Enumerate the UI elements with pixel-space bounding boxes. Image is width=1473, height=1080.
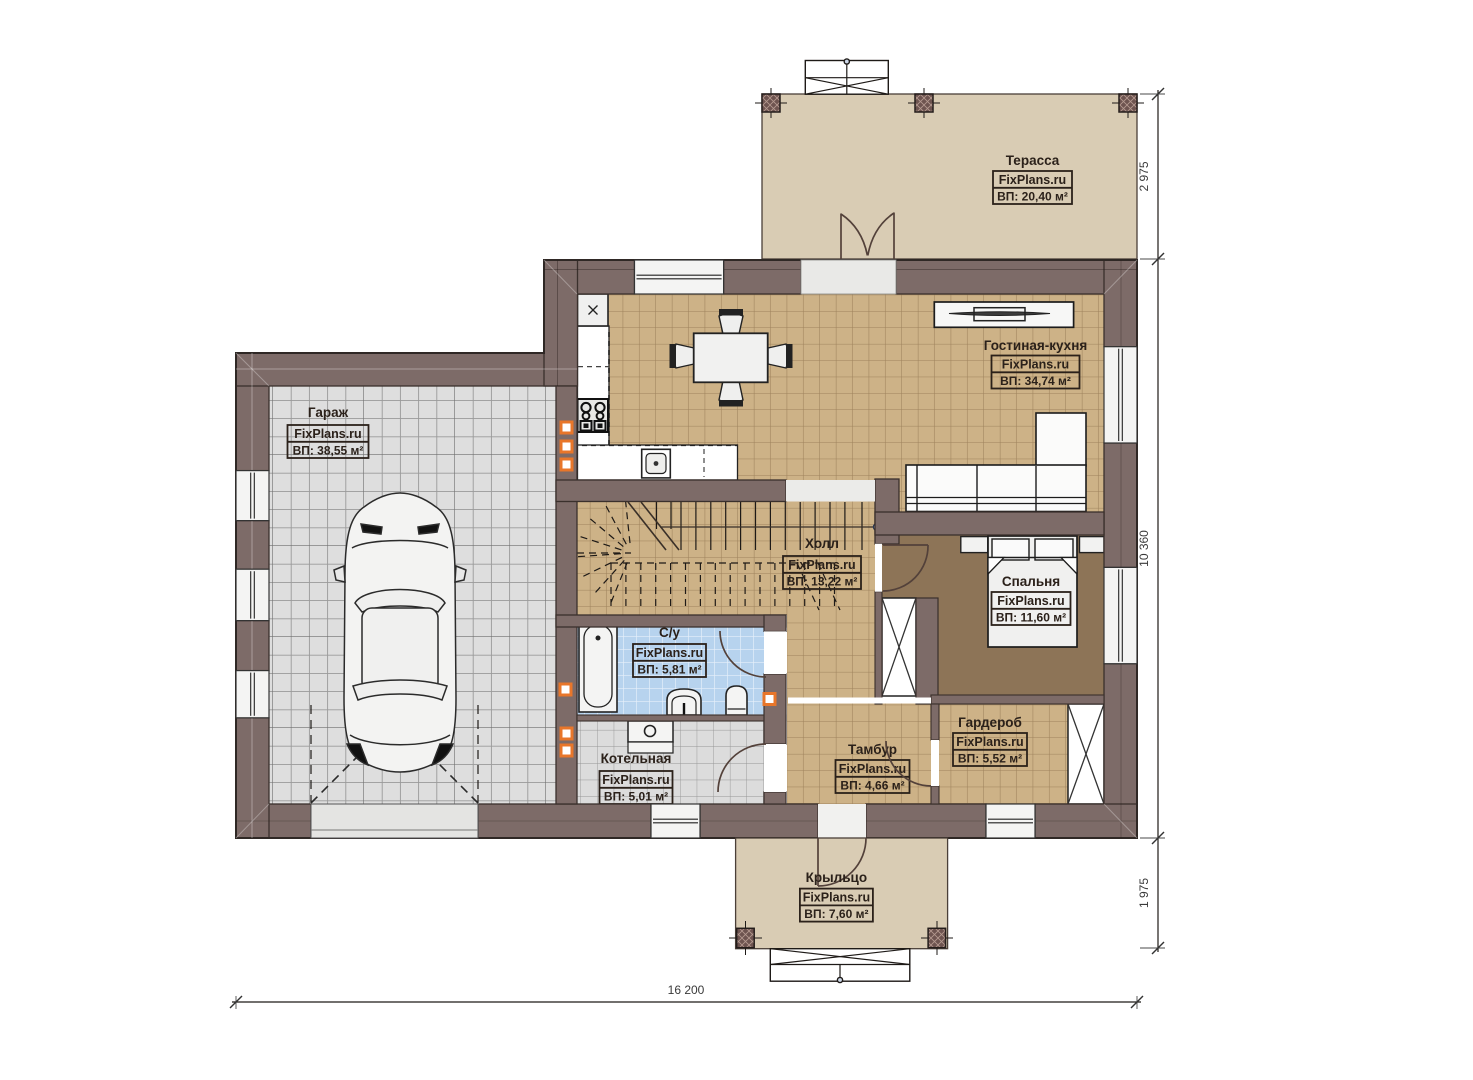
- svg-text:Спальня: Спальня: [1002, 574, 1060, 589]
- svg-text:FixPlans.ru: FixPlans.ru: [294, 427, 361, 441]
- svg-text:ВП: 34,74 м²: ВП: 34,74 м²: [1000, 374, 1071, 388]
- svg-text:Гараж: Гараж: [308, 405, 349, 420]
- svg-text:FixPlans.ru: FixPlans.ru: [636, 646, 703, 660]
- svg-text:FixPlans.ru: FixPlans.ru: [788, 558, 855, 572]
- svg-text:ВП: 5,81 м²: ВП: 5,81 м²: [637, 663, 701, 677]
- svg-text:Тамбур: Тамбур: [848, 742, 897, 757]
- svg-text:ВП: 7,60 м²: ВП: 7,60 м²: [804, 907, 868, 921]
- svg-text:ВП: 11,60 м²: ВП: 11,60 м²: [996, 611, 1066, 625]
- svg-text:FixPlans.ru: FixPlans.ru: [997, 594, 1064, 608]
- svg-text:FixPlans.ru: FixPlans.ru: [602, 773, 669, 787]
- svg-text:FixPlans.ru: FixPlans.ru: [956, 735, 1023, 749]
- svg-text:Котельная: Котельная: [601, 751, 672, 766]
- svg-text:ВП: 20,40 м²: ВП: 20,40 м²: [997, 190, 1068, 204]
- svg-text:FixPlans.ru: FixPlans.ru: [1002, 358, 1069, 372]
- svg-text:Терасса: Терасса: [1006, 153, 1060, 168]
- svg-text:Гардероб: Гардероб: [958, 715, 1022, 730]
- svg-text:ВП: 4,66 м²: ВП: 4,66 м²: [840, 779, 904, 793]
- svg-text:10 360: 10 360: [1137, 530, 1151, 567]
- svg-text:2 975: 2 975: [1137, 161, 1151, 191]
- svg-text:ВП: 5,01 м²: ВП: 5,01 м²: [604, 790, 668, 804]
- svg-text:16 200: 16 200: [668, 983, 705, 997]
- svg-text:ВП: 5,52 м²: ВП: 5,52 м²: [958, 752, 1022, 766]
- svg-text:Крыльцо: Крыльцо: [806, 870, 867, 885]
- svg-text:ВП: 13,22 м²: ВП: 13,22 м²: [787, 575, 858, 589]
- svg-text:Холл: Холл: [805, 536, 839, 551]
- svg-text:Гостиная-кухня: Гостиная-кухня: [984, 338, 1087, 353]
- svg-text:1 975: 1 975: [1137, 878, 1151, 908]
- svg-text:FixPlans.ru: FixPlans.ru: [999, 173, 1066, 187]
- svg-text:FixPlans.ru: FixPlans.ru: [803, 891, 870, 905]
- svg-text:ВП: 38,55 м²: ВП: 38,55 м²: [293, 444, 364, 458]
